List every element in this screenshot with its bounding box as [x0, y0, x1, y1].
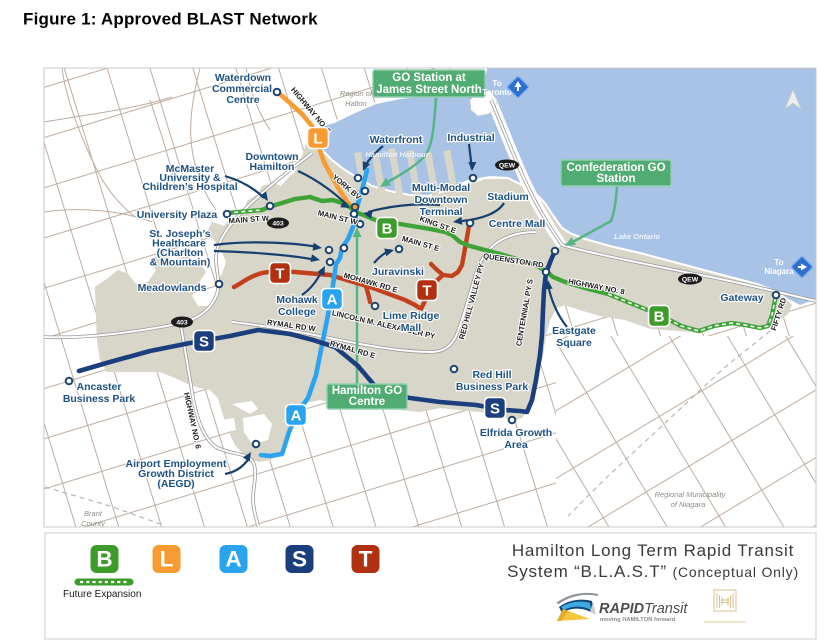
svg-text:System “B.L.A.S.T” (Conceptual: System “B.L.A.S.T” (Conceptual Only) [507, 562, 799, 581]
svg-text:Square: Square [556, 337, 592, 349]
svg-text:B: B [96, 546, 112, 571]
svg-text:Hamilton Harbour: Hamilton Harbour [365, 150, 429, 159]
svg-text:Mall: Mall [401, 322, 422, 334]
svg-text:A: A [291, 407, 302, 424]
svg-text:Halton: Halton [345, 99, 367, 108]
svg-text:Toronto: Toronto [482, 88, 512, 97]
svg-text:QEW: QEW [682, 276, 699, 283]
svg-text:RAPIDTransit: RAPIDTransit [599, 601, 688, 617]
svg-text:Business Park: Business Park [63, 393, 136, 405]
svg-text:L: L [313, 130, 322, 147]
svg-text:Stadium: Stadium [487, 191, 528, 203]
svg-text:403: 403 [272, 220, 284, 227]
svg-text:Downtown: Downtown [414, 194, 467, 206]
svg-text:Waterfront: Waterfront [370, 134, 423, 146]
svg-text:Figure 1: Approved BLAST Netwo: Figure 1: Approved BLAST Network [23, 10, 318, 29]
svg-text:Business Park: Business Park [456, 381, 529, 393]
svg-text:S: S [199, 333, 209, 350]
svg-text:Red Hill: Red Hill [472, 369, 511, 381]
svg-text:403: 403 [176, 319, 188, 326]
svg-text:Eastgate: Eastgate [552, 325, 596, 337]
svg-text:Regional Municipality: Regional Municipality [655, 490, 727, 499]
svg-text:Industrial: Industrial [447, 132, 494, 144]
svg-text:GO Station at: GO Station at [392, 72, 466, 84]
svg-text:Centre: Centre [349, 396, 385, 408]
svg-text:Lake Ontario: Lake Ontario [614, 232, 660, 241]
svg-text:Hamilton: Hamilton [250, 161, 295, 173]
svg-text:University Plaza: University Plaza [137, 209, 218, 221]
svg-text:To: To [774, 258, 783, 267]
svg-text:Mohawk: Mohawk [276, 294, 318, 306]
svg-text:Multi-Modal: Multi-Modal [412, 182, 470, 194]
svg-text:Meadowlands: Meadowlands [138, 282, 207, 294]
svg-text:Juravinski: Juravinski [372, 266, 424, 278]
svg-text:Ancaster: Ancaster [77, 381, 122, 393]
svg-text:Region of: Region of [340, 89, 373, 98]
svg-text:To: To [492, 79, 501, 88]
svg-text:Centre: Centre [226, 94, 259, 106]
svg-text:B: B [654, 308, 665, 325]
svg-text:S: S [292, 546, 307, 571]
svg-text:College: College [278, 306, 316, 318]
svg-text:Niagara: Niagara [764, 267, 794, 276]
svg-text:Centre Mall: Centre Mall [489, 218, 546, 230]
svg-text:B: B [382, 220, 393, 237]
svg-text:S: S [490, 400, 500, 417]
svg-text:Elfrida Growth: Elfrida Growth [480, 427, 552, 439]
svg-text:Children’s Hospital: Children’s Hospital [142, 181, 237, 193]
svg-text:L: L [160, 546, 174, 571]
svg-text:(AEGD): (AEGD) [157, 478, 194, 490]
svg-text:A: A [327, 291, 338, 308]
svg-text:Station: Station [597, 173, 636, 185]
svg-text:QEW: QEW [499, 162, 516, 169]
svg-text:Future Expansion: Future Expansion [63, 589, 141, 600]
svg-text:& Mountain): & Mountain) [150, 257, 211, 269]
svg-text:Lime Ridge: Lime Ridge [383, 310, 440, 322]
svg-text:T: T [422, 282, 431, 299]
svg-text:Area: Area [504, 439, 528, 451]
svg-text:moving HAMILTON forward: moving HAMILTON forward [600, 617, 676, 623]
svg-text:Hamilton Long Term Rapid Trans: Hamilton Long Term Rapid Transit [512, 541, 794, 560]
svg-text:T: T [359, 546, 373, 571]
svg-text:T: T [275, 265, 284, 282]
svg-text:Gateway: Gateway [720, 292, 763, 304]
svg-text:of Niagara: of Niagara [671, 500, 706, 509]
svg-text:Terminal: Terminal [420, 206, 463, 218]
svg-text:A: A [225, 546, 241, 571]
svg-text:Brant: Brant [84, 509, 103, 518]
svg-text:James Street North: James Street North [376, 84, 481, 96]
